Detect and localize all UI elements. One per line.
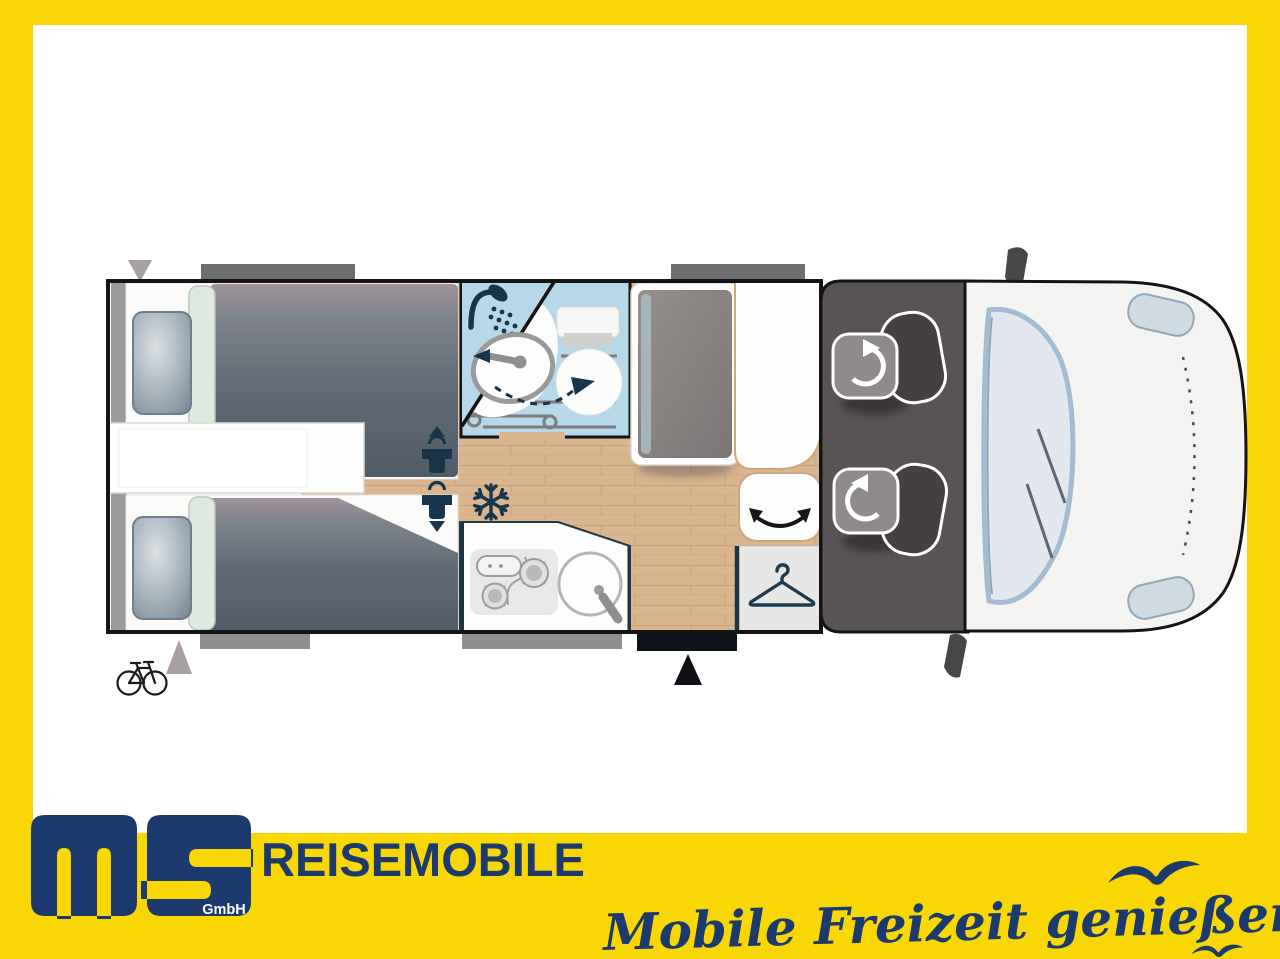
window-rear-top <box>201 264 355 281</box>
sink-drain-dot <box>514 356 527 369</box>
toilet <box>556 307 622 415</box>
bed-bottom-pillow <box>133 517 191 619</box>
bench-backrest <box>735 282 821 469</box>
bench-seat <box>735 282 821 541</box>
fridge-cabinet <box>631 283 739 477</box>
mirror-bottom <box>944 634 967 678</box>
seagull-icons <box>1100 853 1270 959</box>
entry-door-marker <box>674 654 702 685</box>
between-beds-step-inner <box>119 429 307 487</box>
logo-letter-m <box>31 815 137 919</box>
bicycle-icon <box>118 662 167 695</box>
bathroom <box>461 281 630 437</box>
vehicle-front <box>944 247 1246 677</box>
rear-marker-bottom <box>166 640 192 674</box>
toilet-seat-band <box>564 333 612 347</box>
bed-bottom-headboard-pad <box>189 497 215 630</box>
seagull-icon-large <box>1108 861 1200 885</box>
logo-gmbh-text: GmbH <box>202 902 246 918</box>
bed-top-pillow <box>133 312 191 414</box>
window-rear-bottom <box>200 632 310 649</box>
burner-small <box>483 584 508 609</box>
toilet-tank <box>557 307 619 337</box>
bathroom-door-gap <box>499 432 565 439</box>
habitation-interior <box>108 281 823 633</box>
motorhome-floorplan <box>33 25 1280 858</box>
kitchen <box>460 522 630 632</box>
cab <box>821 281 968 632</box>
bench-cushion <box>739 473 821 541</box>
wordmark: REISEMOBILE <box>261 832 585 887</box>
advert-canvas: ms GmbH REISEMOBILE Mobile Freizeit geni… <box>0 0 1280 959</box>
logo-text-sr: ms <box>0 833 1 834</box>
bed-bottom <box>126 495 458 633</box>
window-galley-top <box>671 264 805 281</box>
window-kitchen-bottom <box>462 632 622 649</box>
stove <box>470 549 558 615</box>
logo-letter-s <box>141 815 253 916</box>
cab-seat-passenger <box>834 460 951 559</box>
wardrobe <box>736 546 820 632</box>
burner-large <box>520 559 548 587</box>
ms-gmbh-logo: GmbH <box>31 815 253 919</box>
seagull-icon-small <box>1191 942 1243 959</box>
rear-marker-top <box>128 260 152 282</box>
brand-footer: ms GmbH REISEMOBILE Mobile Freizeit geni… <box>0 833 1280 959</box>
content-area <box>33 25 1247 833</box>
